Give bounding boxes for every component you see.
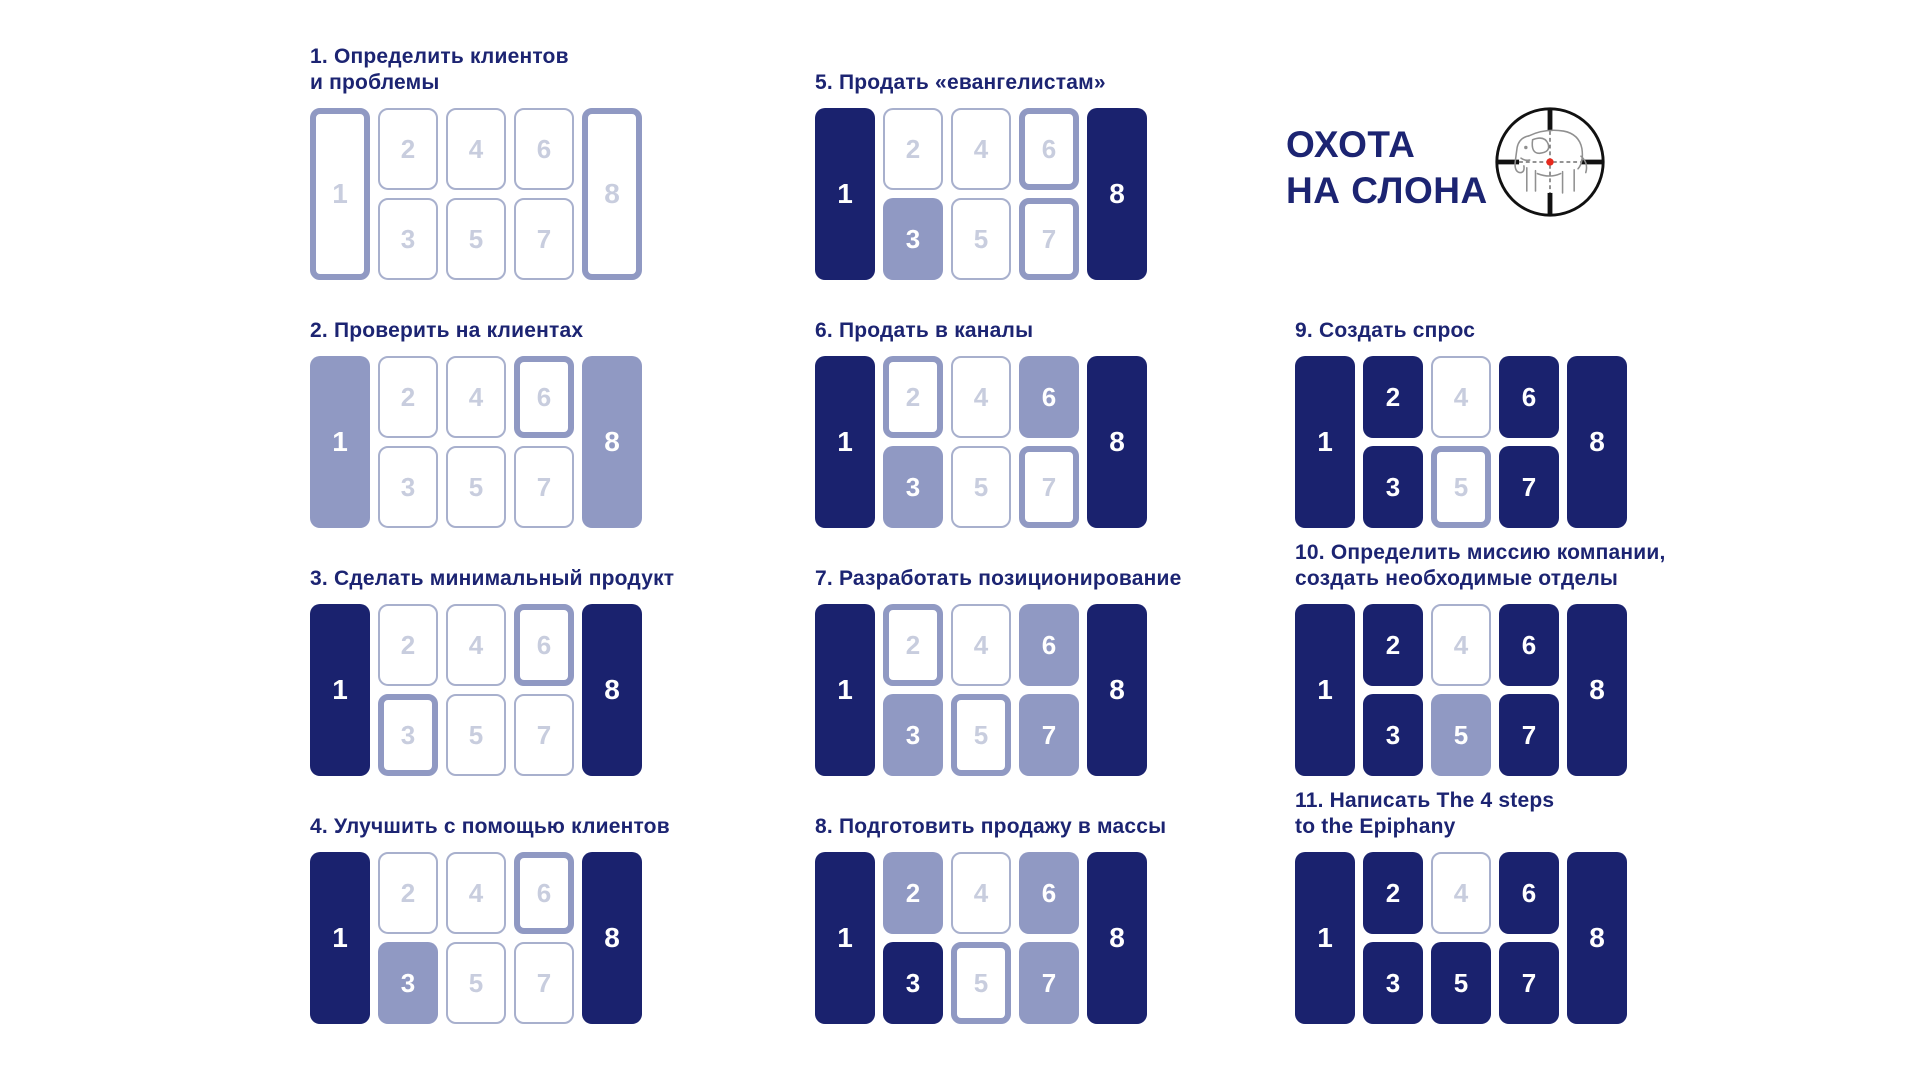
step-11: 11. Написать The 4 steps to the Epiphany… xyxy=(1295,788,1695,1024)
cell-5: 5 xyxy=(446,694,506,776)
cell-6: 6 xyxy=(1019,108,1079,190)
cell-4: 4 xyxy=(1431,356,1491,438)
step-board: 1 2 4 6 3 5 7 8 xyxy=(310,604,642,776)
cell-2: 2 xyxy=(1363,852,1423,934)
cell-2: 2 xyxy=(1363,356,1423,438)
step-title: 8. Подготовить продажу в массы xyxy=(815,814,1215,840)
cell-1: 1 xyxy=(310,852,370,1024)
cell-1: 1 xyxy=(815,604,875,776)
cell-6: 6 xyxy=(1499,356,1559,438)
step-1: 1. Определить клиентов и проблемы 1 2 4 … xyxy=(310,44,710,280)
cell-6: 6 xyxy=(1019,852,1079,934)
cell-2: 2 xyxy=(378,852,438,934)
step-8: 8. Подготовить продажу в массы 1 2 4 6 3… xyxy=(815,814,1215,1024)
step-board: 1 2 4 6 3 5 7 8 xyxy=(815,356,1147,528)
cell-3: 3 xyxy=(1363,446,1423,528)
step-board: 1 2 4 6 3 5 7 8 xyxy=(310,356,642,528)
step-board: 1 2 4 6 3 5 7 8 xyxy=(310,852,642,1024)
cell-8: 8 xyxy=(1087,604,1147,776)
cell-2: 2 xyxy=(883,108,943,190)
cell-2: 2 xyxy=(378,604,438,686)
cell-3: 3 xyxy=(378,942,438,1024)
logo-title: ОХОТА НА СЛОНА xyxy=(1286,122,1488,214)
cell-4: 4 xyxy=(951,604,1011,686)
step-title: 5. Продать «евангелистам» xyxy=(815,70,1215,96)
cell-2: 2 xyxy=(1363,604,1423,686)
cell-6: 6 xyxy=(1019,604,1079,686)
step-5: 5. Продать «евангелистам» 1 2 4 6 3 5 7 … xyxy=(815,70,1215,280)
step-title: 1. Определить клиентов и проблемы xyxy=(310,44,710,96)
cell-5: 5 xyxy=(1431,446,1491,528)
step-2: 2. Проверить на клиентах 1 2 4 6 3 5 7 8 xyxy=(310,318,710,528)
cell-7: 7 xyxy=(1499,942,1559,1024)
cell-1: 1 xyxy=(815,356,875,528)
elephant-in-crosshair-icon xyxy=(1492,104,1608,220)
step-board: 1 2 4 6 3 5 7 8 xyxy=(815,852,1147,1024)
cell-5: 5 xyxy=(446,942,506,1024)
step-board: 1 2 4 6 3 5 7 8 xyxy=(1295,852,1627,1024)
cell-1: 1 xyxy=(815,852,875,1024)
step-9: 9. Создать спрос 1 2 4 6 3 5 7 8 xyxy=(1295,318,1695,528)
cell-7: 7 xyxy=(1019,694,1079,776)
cell-8: 8 xyxy=(1087,852,1147,1024)
cell-7: 7 xyxy=(1019,942,1079,1024)
cell-4: 4 xyxy=(951,356,1011,438)
logo: ОХОТА НА СЛОНА xyxy=(1286,122,1488,214)
cell-1: 1 xyxy=(1295,604,1355,776)
cell-8: 8 xyxy=(1567,852,1627,1024)
cell-5: 5 xyxy=(1431,942,1491,1024)
step-board: 1 2 4 6 3 5 7 8 xyxy=(815,604,1147,776)
cell-2: 2 xyxy=(378,356,438,438)
step-4: 4. Улучшить с помощью клиентов 1 2 4 6 3… xyxy=(310,814,710,1024)
step-title: 3. Сделать минимальный продукт xyxy=(310,566,710,592)
cell-7: 7 xyxy=(1499,694,1559,776)
cell-3: 3 xyxy=(883,198,943,280)
step-board: 1 2 4 6 3 5 7 8 xyxy=(310,108,642,280)
cell-6: 6 xyxy=(1499,604,1559,686)
cell-4: 4 xyxy=(1431,604,1491,686)
cell-5: 5 xyxy=(951,694,1011,776)
step-7: 7. Разработать позиционирование 1 2 4 6 … xyxy=(815,566,1215,776)
cell-3: 3 xyxy=(378,446,438,528)
cell-8: 8 xyxy=(582,852,642,1024)
cell-1: 1 xyxy=(1295,852,1355,1024)
step-6: 6. Продать в каналы 1 2 4 6 3 5 7 8 xyxy=(815,318,1215,528)
step-3: 3. Сделать минимальный продукт 1 2 4 6 3… xyxy=(310,566,710,776)
cell-3: 3 xyxy=(883,942,943,1024)
step-board: 1 2 4 6 3 5 7 8 xyxy=(1295,356,1627,528)
cell-5: 5 xyxy=(446,446,506,528)
cell-8: 8 xyxy=(1087,356,1147,528)
cell-4: 4 xyxy=(446,108,506,190)
cell-4: 4 xyxy=(951,852,1011,934)
cell-8: 8 xyxy=(1087,108,1147,280)
cell-8: 8 xyxy=(582,604,642,776)
cell-6: 6 xyxy=(514,852,574,934)
cell-4: 4 xyxy=(446,852,506,934)
cell-2: 2 xyxy=(883,604,943,686)
cell-1: 1 xyxy=(815,108,875,280)
step-title: 9. Создать спрос xyxy=(1295,318,1695,344)
cell-7: 7 xyxy=(514,942,574,1024)
cell-3: 3 xyxy=(883,446,943,528)
cell-3: 3 xyxy=(883,694,943,776)
cell-2: 2 xyxy=(378,108,438,190)
step-10: 10. Определить миссию компании, создать … xyxy=(1295,540,1695,776)
cell-5: 5 xyxy=(951,446,1011,528)
cell-4: 4 xyxy=(1431,852,1491,934)
cell-3: 3 xyxy=(1363,694,1423,776)
step-title: 4. Улучшить с помощью клиентов xyxy=(310,814,710,840)
cell-8: 8 xyxy=(1567,604,1627,776)
cell-5: 5 xyxy=(1431,694,1491,776)
cell-3: 3 xyxy=(378,694,438,776)
cell-1: 1 xyxy=(1295,356,1355,528)
cell-7: 7 xyxy=(514,694,574,776)
cell-7: 7 xyxy=(514,198,574,280)
cell-6: 6 xyxy=(514,108,574,190)
cell-6: 6 xyxy=(1019,356,1079,438)
cell-2: 2 xyxy=(883,356,943,438)
cell-7: 7 xyxy=(1019,198,1079,280)
step-title: 6. Продать в каналы xyxy=(815,318,1215,344)
cell-1: 1 xyxy=(310,604,370,776)
step-board: 1 2 4 6 3 5 7 8 xyxy=(1295,604,1627,776)
cell-4: 4 xyxy=(446,356,506,438)
cell-7: 7 xyxy=(1019,446,1079,528)
cell-4: 4 xyxy=(951,108,1011,190)
step-title: 7. Разработать позиционирование xyxy=(815,566,1215,592)
cell-6: 6 xyxy=(1499,852,1559,934)
cell-6: 6 xyxy=(514,356,574,438)
cell-8: 8 xyxy=(582,356,642,528)
cell-5: 5 xyxy=(951,942,1011,1024)
cell-8: 8 xyxy=(1567,356,1627,528)
cell-4: 4 xyxy=(446,604,506,686)
step-title: 10. Определить миссию компании, создать … xyxy=(1295,540,1695,592)
cell-8: 8 xyxy=(582,108,642,280)
cell-2: 2 xyxy=(883,852,943,934)
cell-3: 3 xyxy=(378,198,438,280)
cell-3: 3 xyxy=(1363,942,1423,1024)
step-title: 2. Проверить на клиентах xyxy=(310,318,710,344)
step-board: 1 2 4 6 3 5 7 8 xyxy=(815,108,1147,280)
cell-5: 5 xyxy=(446,198,506,280)
cell-5: 5 xyxy=(951,198,1011,280)
step-title: 11. Написать The 4 steps to the Epiphany xyxy=(1295,788,1695,840)
cell-1: 1 xyxy=(310,356,370,528)
cell-7: 7 xyxy=(1499,446,1559,528)
cell-7: 7 xyxy=(514,446,574,528)
cell-1: 1 xyxy=(310,108,370,280)
cell-6: 6 xyxy=(514,604,574,686)
